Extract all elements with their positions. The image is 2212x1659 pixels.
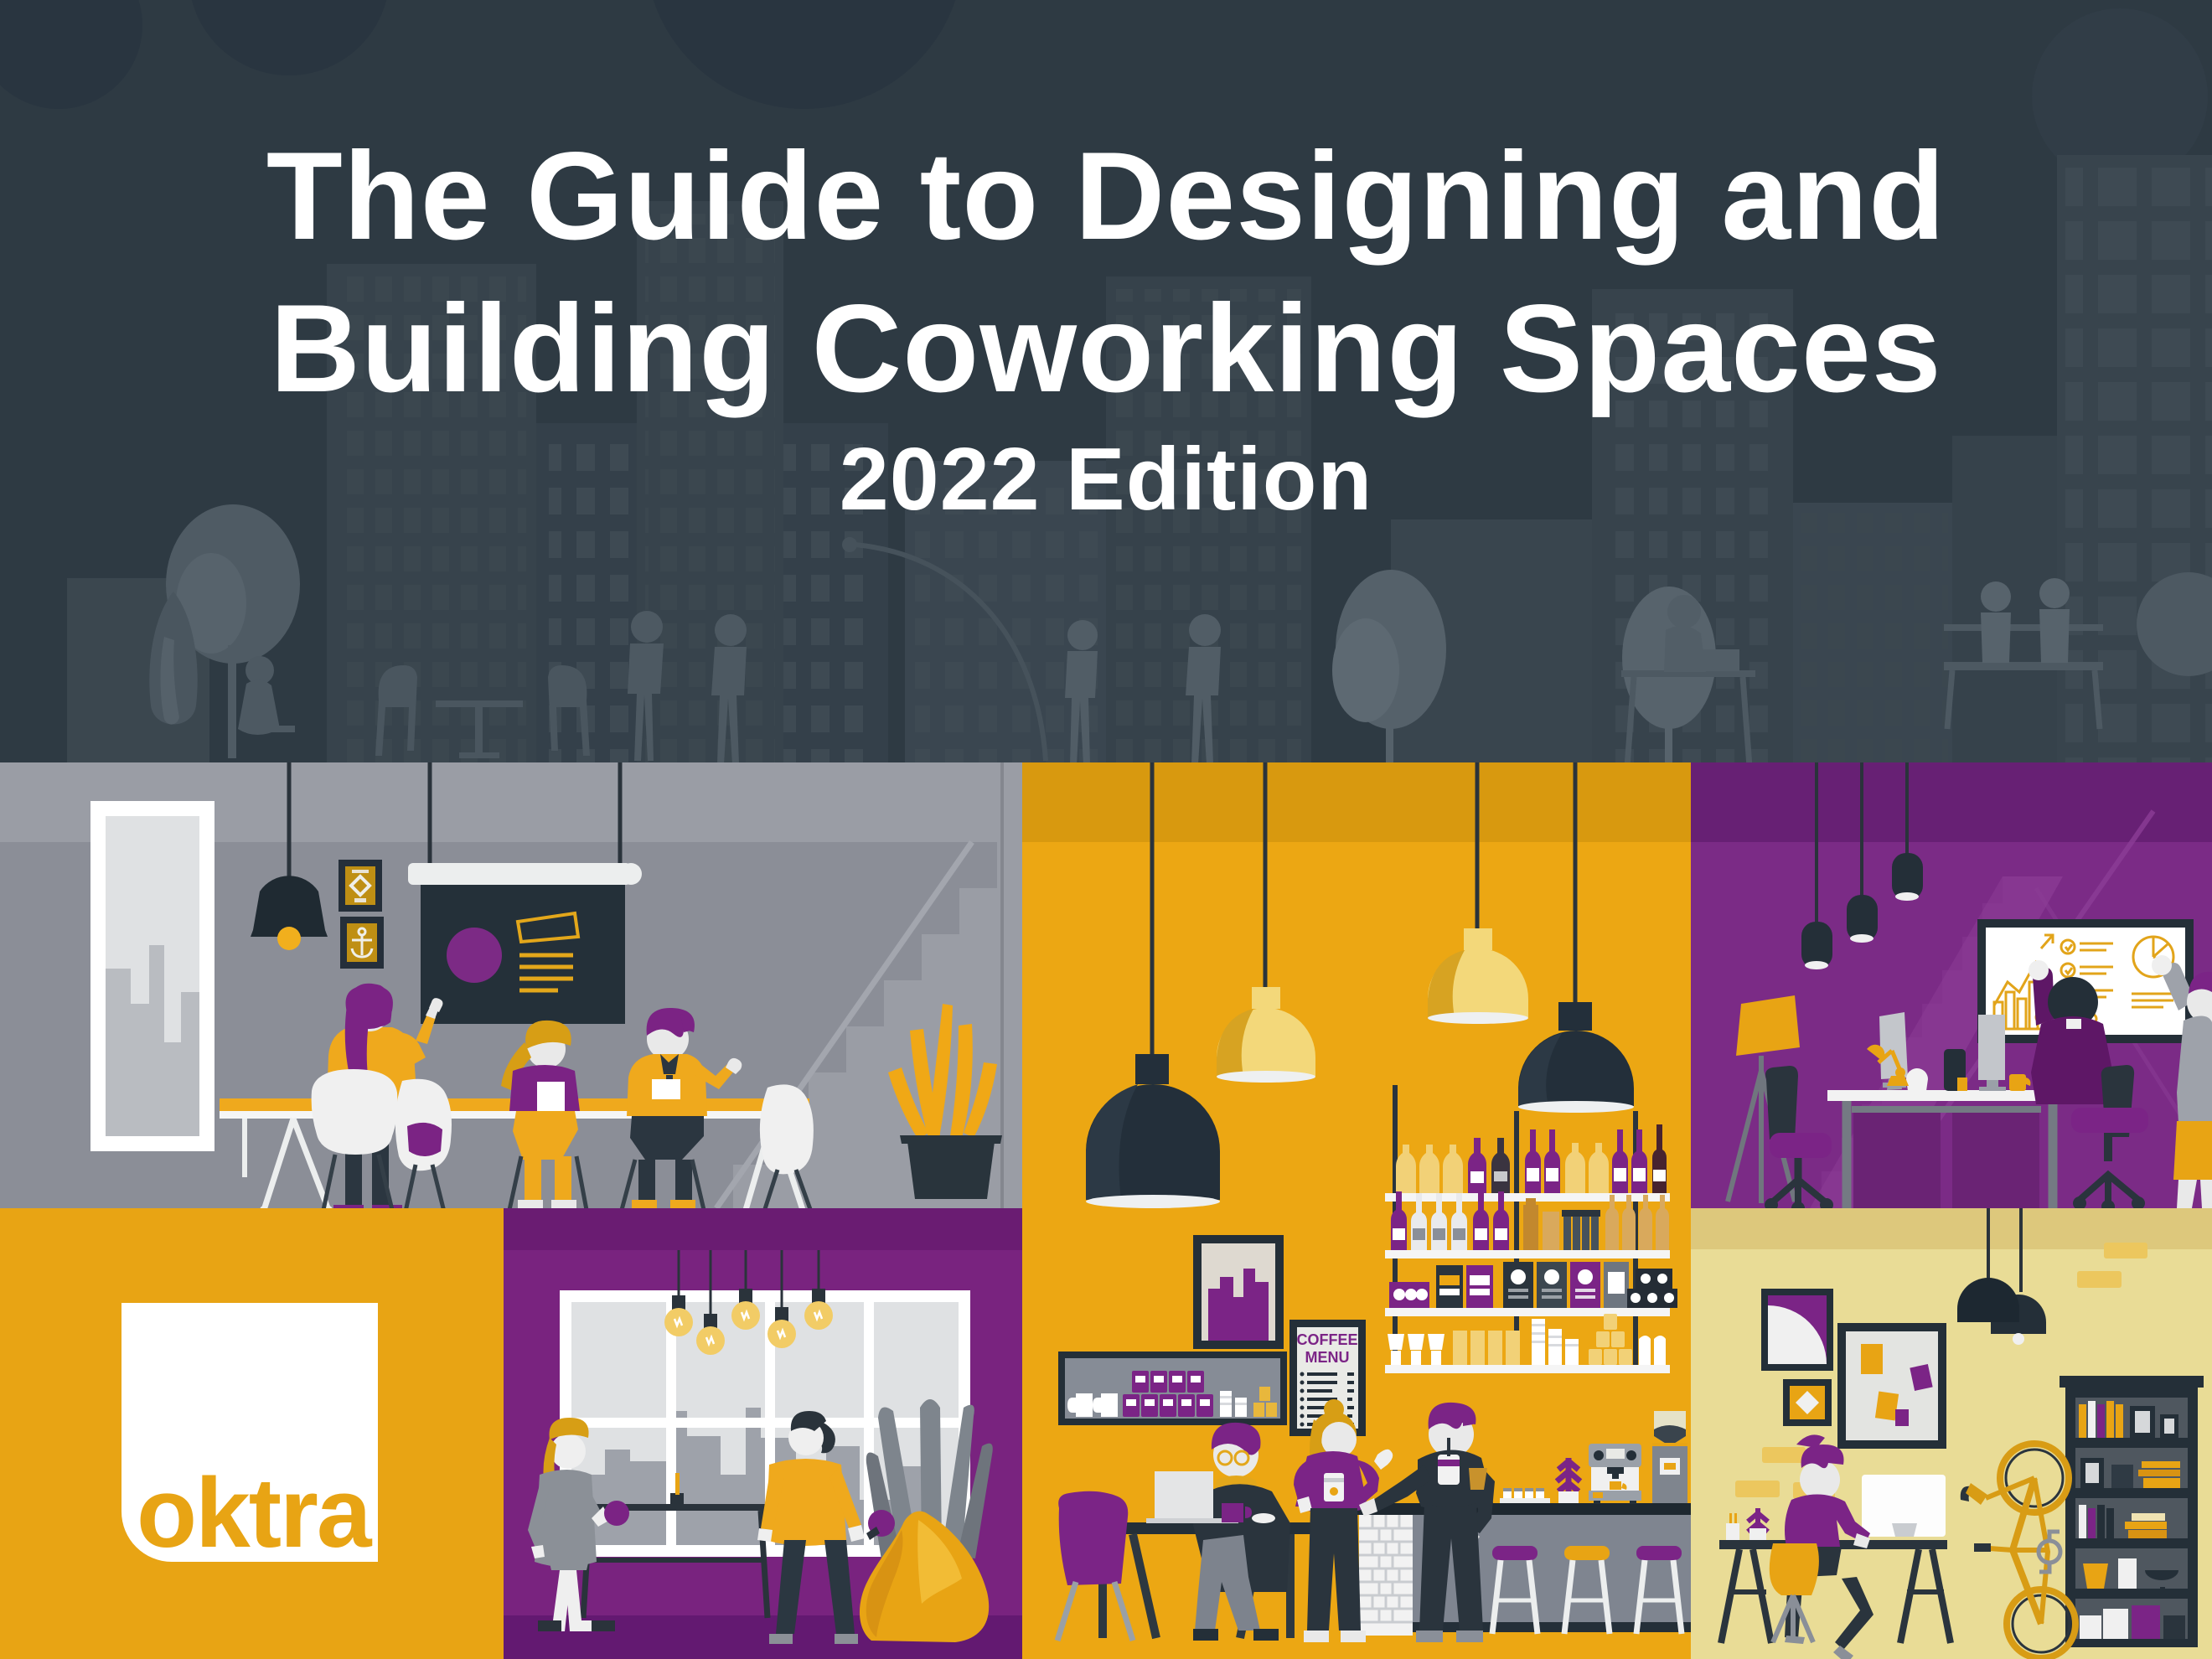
svg-text:Building Coworking Spaces: Building Coworking Spaces [270,278,1941,418]
svg-text:2022 Edition: 2022 Edition [840,430,1372,529]
svg-text:MENU: MENU [1305,1349,1350,1366]
svg-text:The Guide to Designing and: The Guide to Designing and [266,126,1946,266]
svg-text:oktra: oktra [137,1458,373,1569]
svg-text:COFFEE: COFFEE [1296,1331,1357,1348]
